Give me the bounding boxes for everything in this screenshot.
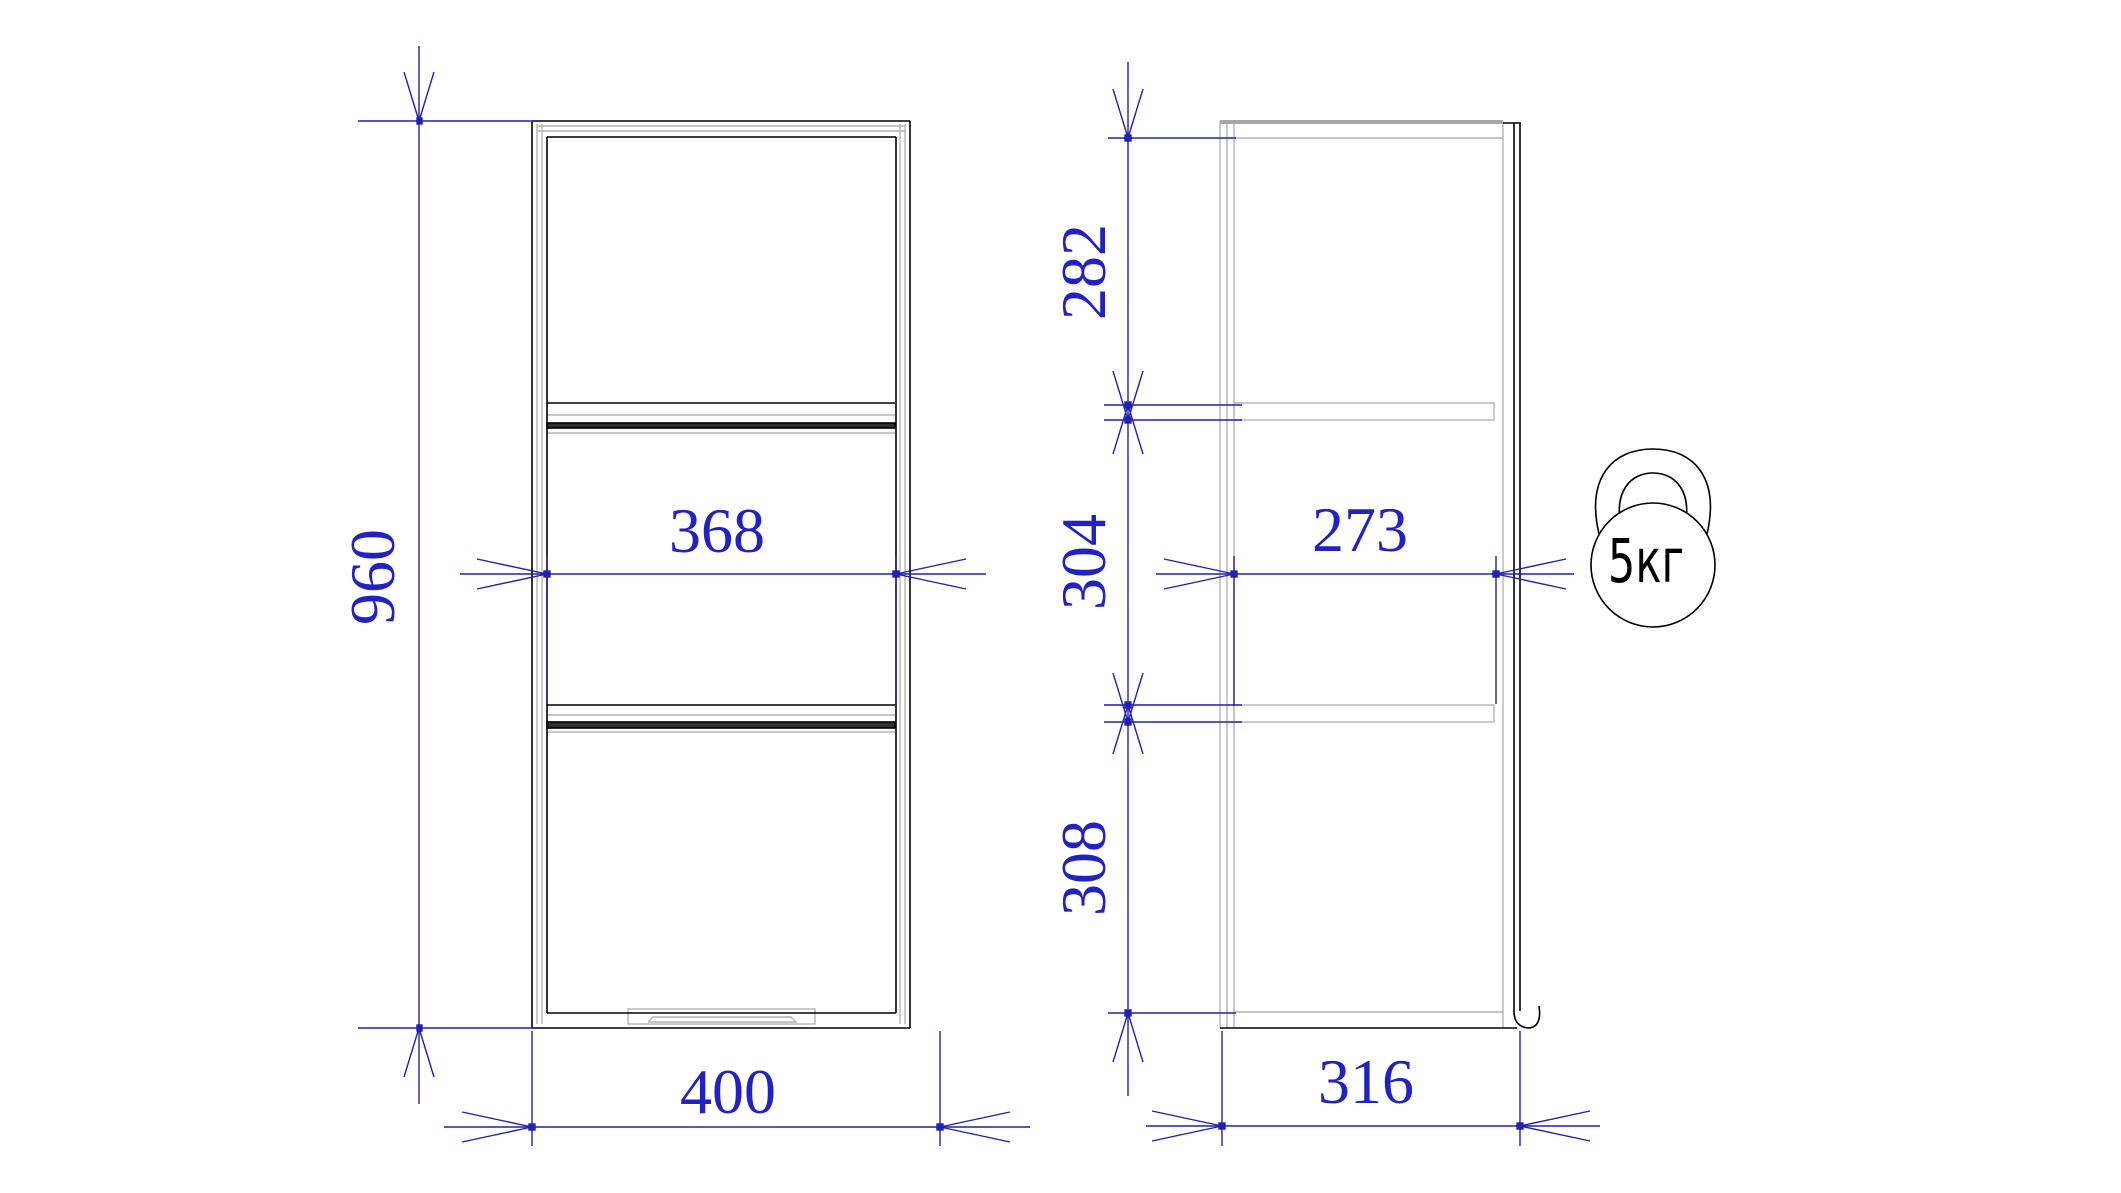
dim-label-side-top-compartment: 282 [1052,224,1116,320]
dim-label-front-inner-width: 368 [669,499,765,563]
dim-label-front-height: 960 [341,529,405,625]
drawing-sheet: 960 368 400 282 304 308 273 316 5кг [0,0,2121,1193]
load-capacity-label: 5кг [1608,532,1684,592]
dim-368 [460,556,986,704]
shelf-side-2 [1234,705,1494,722]
dim-label-side-middle-compartment: 304 [1052,514,1116,610]
dim-label-side-overall-depth: 316 [1318,1050,1414,1114]
shelf-side-1 [1234,403,1494,420]
side-view-door [1220,123,1540,1028]
dim-side-vertical-chain [1104,62,1242,1096]
dim-label-front-overall-width: 400 [680,1060,776,1124]
dim-label-side-inner-depth: 273 [1312,498,1408,562]
door-bottom-hook [1514,1006,1540,1028]
shelf-front-edge-1 [547,423,895,428]
dim-label-side-bottom-compartment: 308 [1052,820,1116,916]
shelf-front-edge-2 [547,722,895,728]
dimensions [358,46,1600,1146]
dim-273 [1156,556,1574,706]
